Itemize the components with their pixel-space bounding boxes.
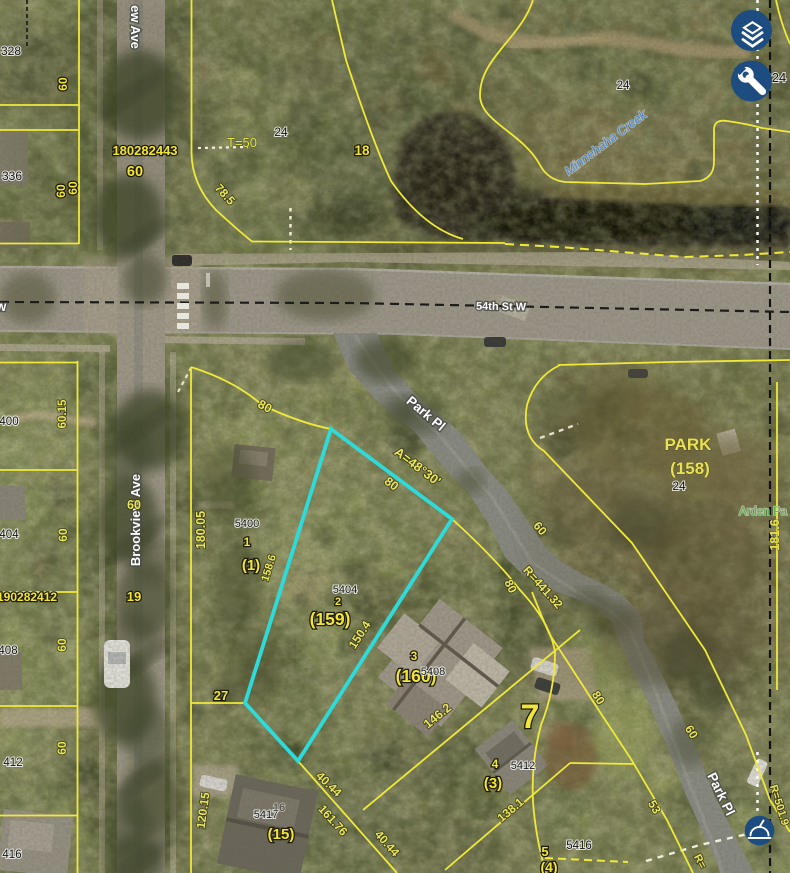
svg-text:328: 328 xyxy=(1,44,21,58)
svg-text:60: 60 xyxy=(56,528,70,542)
svg-text:5: 5 xyxy=(541,844,548,859)
svg-text:336: 336 xyxy=(2,169,22,183)
svg-text:400: 400 xyxy=(0,416,19,428)
svg-text:60: 60 xyxy=(55,638,69,652)
svg-text:412: 412 xyxy=(3,757,22,769)
svg-text:24: 24 xyxy=(274,125,288,139)
svg-text:(159): (159) xyxy=(310,609,351,629)
svg-text:181.6: 181.6 xyxy=(768,519,782,550)
svg-text:PARK: PARK xyxy=(665,435,713,454)
svg-text:5416: 5416 xyxy=(566,840,592,852)
svg-text:180282443: 180282443 xyxy=(112,143,177,158)
svg-text:Brookview Ave: Brookview Ave xyxy=(128,474,143,566)
svg-text:7: 7 xyxy=(521,698,540,736)
svg-text:ew Ave: ew Ave xyxy=(128,5,143,49)
svg-text:27: 27 xyxy=(214,688,228,703)
svg-text:(158): (158) xyxy=(670,459,710,478)
svg-text:(3): (3) xyxy=(484,775,502,792)
svg-text:1: 1 xyxy=(244,535,251,549)
svg-text:180.05: 180.05 xyxy=(194,511,208,549)
svg-text:16: 16 xyxy=(273,802,285,814)
svg-text:19: 19 xyxy=(127,589,141,604)
svg-text:(1): (1) xyxy=(242,557,260,574)
svg-text:5400: 5400 xyxy=(235,518,259,530)
svg-text:5412: 5412 xyxy=(511,760,535,772)
svg-text:24: 24 xyxy=(772,70,786,85)
svg-text:Arden Pa: Arden Pa xyxy=(739,506,788,518)
svg-text:24: 24 xyxy=(672,479,686,493)
svg-text:3: 3 xyxy=(411,649,418,663)
svg-text:54th St W: 54th St W xyxy=(476,301,527,314)
svg-text:416: 416 xyxy=(2,849,21,861)
svg-text:4: 4 xyxy=(492,757,499,771)
svg-text:(15): (15) xyxy=(268,826,295,843)
svg-text:5404: 5404 xyxy=(333,584,357,596)
svg-text:60: 60 xyxy=(66,181,80,195)
svg-text:408: 408 xyxy=(0,645,18,657)
svg-text:5408: 5408 xyxy=(421,666,445,678)
svg-text:24: 24 xyxy=(617,80,630,92)
svg-text:190282412: 190282412 xyxy=(0,590,57,604)
svg-text:60.15: 60.15 xyxy=(57,399,69,428)
svg-text:(4): (4) xyxy=(540,859,557,873)
svg-text:60: 60 xyxy=(127,498,141,512)
svg-text:18: 18 xyxy=(354,143,370,158)
svg-text:60: 60 xyxy=(55,741,69,755)
svg-text:2: 2 xyxy=(335,596,341,608)
svg-text:404: 404 xyxy=(0,529,19,541)
svg-text:W: W xyxy=(0,302,7,314)
svg-text:T=50: T=50 xyxy=(227,135,257,150)
svg-text:60: 60 xyxy=(127,164,143,180)
svg-text:60: 60 xyxy=(56,77,70,91)
